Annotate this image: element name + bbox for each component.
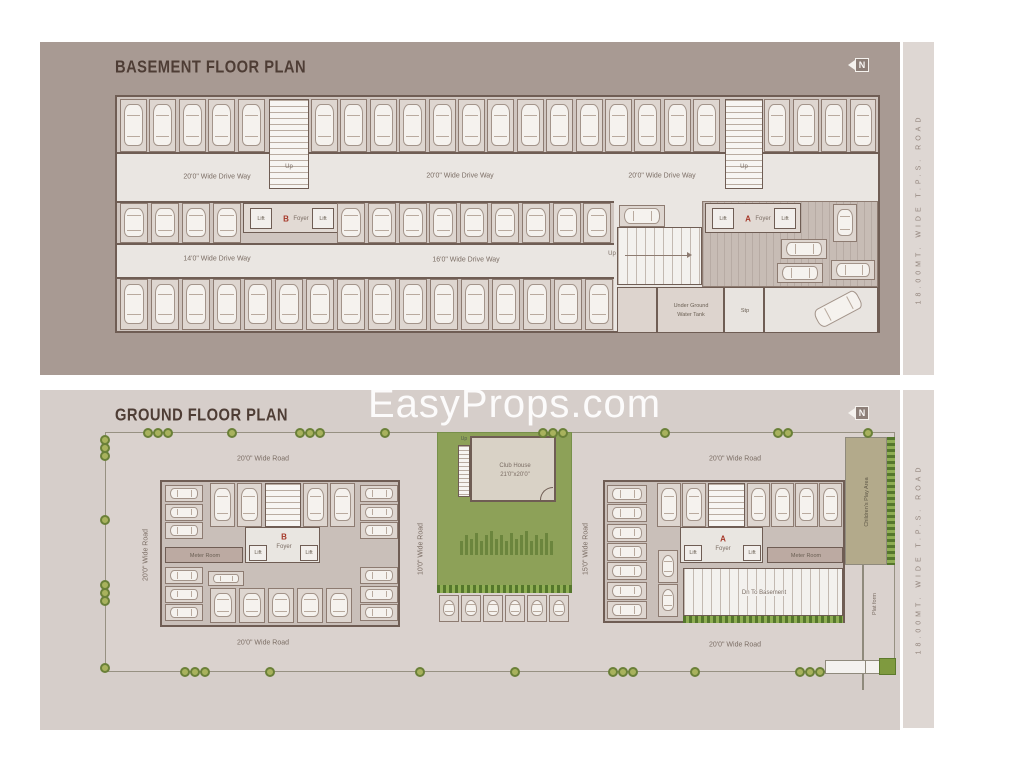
parking-stall bbox=[430, 279, 458, 330]
parking-stall bbox=[182, 279, 210, 330]
car-icon bbox=[837, 209, 853, 236]
tree-icon bbox=[190, 667, 200, 677]
boundary-hedge bbox=[887, 437, 895, 565]
ramp-hedge bbox=[683, 616, 843, 623]
play-area-label: Children's Play Area bbox=[864, 477, 870, 526]
tree-icon bbox=[200, 667, 210, 677]
parking-stall bbox=[360, 485, 398, 502]
parking-stall bbox=[399, 203, 427, 243]
car-icon bbox=[365, 589, 393, 600]
car-icon bbox=[589, 284, 609, 324]
road-label: 20'0" Wide Road bbox=[237, 640, 289, 647]
parking-stall bbox=[360, 567, 398, 584]
car-icon bbox=[797, 104, 815, 146]
car-icon bbox=[170, 570, 198, 581]
parking-stall bbox=[151, 203, 179, 243]
driveway-label: 16'0" Wide Drive Way bbox=[432, 257, 499, 264]
car-icon bbox=[186, 208, 206, 237]
parking-stall bbox=[238, 99, 265, 152]
tree-icon bbox=[163, 428, 173, 438]
building-b-stair bbox=[265, 483, 301, 527]
parking-stall bbox=[244, 279, 272, 330]
stp-room: Stp bbox=[724, 287, 764, 333]
parking-stall bbox=[483, 595, 503, 622]
car-icon bbox=[782, 266, 818, 280]
plant-bar-icon bbox=[510, 533, 513, 555]
tree-icon bbox=[100, 451, 110, 461]
car-icon bbox=[243, 593, 261, 617]
car-icon bbox=[557, 208, 577, 237]
building-a-stair bbox=[708, 483, 745, 527]
parking-stall bbox=[554, 279, 582, 330]
car-icon bbox=[443, 600, 455, 616]
parking-stall bbox=[165, 504, 203, 521]
car-icon bbox=[661, 488, 677, 521]
car-icon bbox=[638, 104, 657, 146]
parking-stall bbox=[527, 595, 547, 622]
platform-label: Plat form bbox=[872, 593, 878, 615]
stp-label: Stp bbox=[741, 308, 749, 314]
tree-icon bbox=[100, 596, 110, 606]
parking-stall bbox=[771, 483, 794, 527]
tree-icon bbox=[265, 667, 275, 677]
basement-ramp-ground: Dn To Basement bbox=[683, 568, 843, 616]
car-icon bbox=[272, 593, 290, 617]
basement-title: BASEMENT FLOOR PLAN bbox=[115, 58, 306, 78]
club-house: Club House 21'0"x20'0" bbox=[470, 436, 556, 502]
parking-stall bbox=[165, 604, 203, 621]
plant-bar-icon bbox=[530, 541, 533, 555]
water-tank-label-1: Under Ground bbox=[674, 303, 709, 309]
car-icon bbox=[612, 507, 642, 519]
foyer-label: Foyer bbox=[715, 546, 730, 552]
building-b-foyer: B Foyer Lift Lift bbox=[245, 527, 320, 563]
tree-icon bbox=[315, 428, 325, 438]
parking-stall bbox=[165, 522, 203, 539]
parking-stall bbox=[179, 99, 206, 152]
car-icon bbox=[612, 604, 642, 616]
floor-plan-page: { "watermark_text": "EasyProps.com", "si… bbox=[0, 0, 1021, 768]
car-icon bbox=[609, 104, 628, 146]
parking-stall bbox=[303, 483, 328, 527]
tree-icon bbox=[690, 667, 700, 677]
car-icon bbox=[242, 104, 261, 146]
parking-stall bbox=[120, 203, 148, 243]
parking-stall bbox=[576, 99, 603, 152]
car-icon bbox=[751, 488, 766, 521]
tree-icon bbox=[783, 428, 793, 438]
parking-stall bbox=[208, 571, 244, 586]
parking-stall bbox=[492, 279, 520, 330]
plant-bar-icon bbox=[495, 539, 498, 555]
road-label: 20'0" Wide Road bbox=[143, 529, 150, 581]
parking-stall bbox=[658, 584, 678, 617]
ground-plan: 20'0" Wide Road 20'0" Wide Road 20'0" Wi… bbox=[105, 432, 895, 732]
side-road-label: 18.00MT. WIDE T.P.S. ROAD bbox=[915, 113, 922, 304]
core-b: Lift B Foyer Lift bbox=[243, 203, 339, 233]
car-icon bbox=[487, 600, 499, 616]
parking-stall bbox=[151, 279, 179, 330]
car-icon bbox=[307, 488, 324, 521]
parking-stall bbox=[337, 279, 365, 330]
parking-stall bbox=[657, 483, 681, 527]
parking-stall bbox=[607, 485, 647, 503]
basement-plan: Up Up 20'0" Wide Drive Way 20'0" Wide Dr… bbox=[115, 95, 880, 333]
parking-stall bbox=[213, 279, 241, 330]
parking-stall bbox=[165, 485, 203, 502]
parking-stall bbox=[458, 99, 485, 152]
parking-stall bbox=[553, 203, 581, 243]
lift: Lift bbox=[300, 545, 318, 561]
foyer-b-label: Foyer bbox=[293, 216, 308, 222]
car-icon bbox=[553, 600, 565, 616]
parking-stall bbox=[522, 203, 550, 243]
block-a-letter: A bbox=[720, 535, 726, 544]
driveway-label: 20'0" Wide Drive Way bbox=[183, 174, 250, 181]
car-icon bbox=[836, 263, 870, 277]
lift-a1: Lift bbox=[712, 208, 734, 229]
car-icon bbox=[612, 488, 642, 500]
car-icon bbox=[403, 104, 422, 146]
lift-a2: Lift bbox=[774, 208, 796, 229]
tree-icon bbox=[415, 667, 425, 677]
parking-stall bbox=[210, 483, 235, 527]
tree-icon bbox=[618, 667, 628, 677]
road-label: 10'0" Wide Road bbox=[418, 523, 425, 575]
basement-stair-b bbox=[269, 99, 309, 189]
stair-up-label: Up bbox=[285, 164, 293, 170]
parking-stall bbox=[523, 279, 551, 330]
car-icon bbox=[372, 284, 392, 324]
parking-stall bbox=[360, 604, 398, 621]
car-icon bbox=[550, 104, 569, 146]
parking-stall bbox=[337, 203, 365, 243]
childrens-play-area: Children's Play Area bbox=[845, 437, 887, 565]
parking-stall bbox=[607, 504, 647, 522]
car-icon bbox=[217, 208, 237, 237]
parking-stall bbox=[693, 99, 720, 152]
building-a-meter-room: Meter Room bbox=[767, 547, 843, 563]
car-icon bbox=[365, 507, 393, 518]
parking-stall bbox=[583, 203, 611, 243]
car-icon bbox=[465, 284, 485, 324]
garden-hedge bbox=[437, 585, 572, 593]
parking-stall bbox=[793, 99, 819, 152]
parking-stall bbox=[370, 99, 397, 152]
parking-stall bbox=[850, 99, 876, 152]
plant-bar-icon bbox=[545, 533, 548, 555]
north-arrow-icon bbox=[848, 60, 855, 70]
parking-stall bbox=[368, 203, 396, 243]
tree-icon bbox=[380, 428, 390, 438]
car-icon bbox=[217, 284, 237, 324]
parking-stall bbox=[399, 99, 426, 152]
lift-b2: Lift bbox=[312, 208, 334, 229]
car-icon bbox=[854, 104, 872, 146]
core-a: Lift A Foyer Lift bbox=[705, 203, 801, 233]
plant-bar-icon bbox=[490, 531, 493, 555]
car-icon bbox=[170, 525, 198, 536]
tree-icon bbox=[538, 428, 548, 438]
car-icon bbox=[214, 488, 231, 521]
parking-stall bbox=[795, 483, 818, 527]
parking-stall bbox=[549, 595, 569, 622]
parking-stall bbox=[297, 588, 323, 623]
water-tank-room: Under Ground Water Tank bbox=[657, 287, 724, 333]
lift: Lift bbox=[743, 545, 761, 561]
parking-stall bbox=[165, 586, 203, 603]
car-icon bbox=[612, 585, 642, 597]
car-icon bbox=[310, 284, 330, 324]
car-icon bbox=[330, 593, 348, 617]
parking-stall bbox=[546, 99, 573, 152]
car-icon bbox=[527, 284, 547, 324]
parking-stall bbox=[607, 562, 647, 580]
parking-stall bbox=[268, 588, 294, 623]
driveway-label: 20'0" Wide Drive Way bbox=[628, 173, 695, 180]
parking-stall bbox=[210, 588, 236, 623]
road-label: 15'0" Wide Road bbox=[583, 523, 590, 575]
plant-bar-icon bbox=[475, 533, 478, 555]
car-icon bbox=[775, 488, 790, 521]
plant-bar-icon bbox=[520, 535, 523, 555]
ramp-arrow-line bbox=[625, 255, 687, 256]
parking-stall bbox=[360, 504, 398, 521]
car-icon bbox=[799, 488, 814, 521]
ramp-arrowhead-icon bbox=[687, 252, 692, 258]
plant-bar-icon bbox=[500, 535, 503, 555]
car-icon bbox=[612, 527, 642, 539]
meter-room-label: Meter Room bbox=[791, 553, 821, 559]
car-icon bbox=[531, 600, 543, 616]
tree-icon bbox=[773, 428, 783, 438]
parking-stall bbox=[439, 595, 459, 622]
watermark: EasyProps.com bbox=[368, 382, 661, 427]
parking-stall bbox=[182, 203, 210, 243]
ground-title: GROUND FLOOR PLAN bbox=[115, 406, 288, 426]
gate-cabin bbox=[865, 660, 880, 674]
parking-stall bbox=[607, 582, 647, 600]
car-icon bbox=[558, 284, 578, 324]
tree-icon bbox=[815, 667, 825, 677]
parking-stall bbox=[429, 99, 456, 152]
club-house-name: Club House bbox=[499, 463, 530, 469]
car-icon bbox=[433, 104, 452, 146]
parking-stall bbox=[491, 203, 519, 243]
plant-bar-icon bbox=[460, 541, 463, 555]
road-label: 20'0" Wide Road bbox=[709, 456, 761, 463]
car-icon bbox=[214, 593, 232, 617]
car-icon bbox=[186, 284, 206, 324]
car-icon bbox=[124, 284, 144, 324]
car-icon bbox=[124, 208, 144, 237]
car-icon bbox=[170, 507, 198, 518]
parking-stall bbox=[607, 543, 647, 561]
parking-stall bbox=[461, 595, 481, 622]
tree-icon bbox=[660, 428, 670, 438]
ramp-label: Dn To Basement bbox=[740, 590, 788, 596]
plant-bar-icon bbox=[465, 535, 468, 555]
car-icon bbox=[183, 104, 202, 146]
car-icon bbox=[624, 208, 660, 224]
water-tank-label-2: Water Tank bbox=[677, 312, 705, 318]
parking-stall bbox=[777, 263, 823, 283]
car-icon bbox=[365, 488, 393, 499]
parking-stall bbox=[399, 279, 427, 330]
building-a-foyer: A Foyer Lift Lift bbox=[680, 527, 763, 563]
plant-bar-icon bbox=[535, 535, 538, 555]
tree-icon bbox=[805, 667, 815, 677]
basement-stair-a bbox=[725, 99, 763, 189]
parking-stall bbox=[360, 522, 398, 539]
car-icon bbox=[768, 104, 786, 146]
parking-stall bbox=[505, 595, 525, 622]
tree-icon bbox=[558, 428, 568, 438]
car-icon bbox=[662, 555, 674, 577]
car-icon bbox=[509, 600, 521, 616]
car-icon bbox=[170, 488, 198, 499]
parking-stall bbox=[461, 279, 489, 330]
tree-icon bbox=[100, 663, 110, 673]
side-road-strip: 18.00MT. WIDE T.P.S. ROAD bbox=[903, 390, 934, 728]
car-icon bbox=[495, 208, 515, 237]
car-icon bbox=[248, 284, 268, 324]
driveway-label: 14'0" Wide Drive Way bbox=[183, 256, 250, 263]
stair-up-label: Up bbox=[740, 164, 748, 170]
car-icon bbox=[462, 104, 481, 146]
car-icon bbox=[155, 208, 175, 237]
parking-stall bbox=[821, 99, 847, 152]
plant-bar-icon bbox=[515, 539, 518, 555]
parking-stall bbox=[619, 205, 665, 227]
parking-stall bbox=[819, 483, 842, 527]
parking-stall bbox=[326, 588, 352, 623]
parking-stall bbox=[330, 483, 355, 527]
door-arc-icon bbox=[540, 487, 553, 500]
car-icon bbox=[124, 104, 143, 146]
car-icon bbox=[786, 242, 822, 256]
lift: Lift bbox=[249, 545, 267, 561]
car-icon bbox=[587, 208, 607, 237]
plant-bar-icon bbox=[505, 541, 508, 555]
car-icon bbox=[344, 104, 363, 146]
car-icon bbox=[434, 284, 454, 324]
block-b-letter: B bbox=[283, 215, 289, 224]
parking-stall bbox=[237, 483, 262, 527]
parking-stall bbox=[607, 524, 647, 542]
ground-panel: GROUND FLOOR PLAN N 20'0" Wide Road 20'0… bbox=[40, 390, 900, 730]
north-letter: N bbox=[855, 406, 869, 420]
parking-stall bbox=[311, 99, 338, 152]
car-icon bbox=[374, 104, 393, 146]
parking-stall bbox=[607, 601, 647, 619]
plant-bar-icon bbox=[480, 541, 483, 555]
club-house-size: 21'0"x20'0" bbox=[500, 472, 530, 478]
parking-stall bbox=[165, 567, 203, 584]
car-icon bbox=[526, 208, 546, 237]
parking-stall bbox=[306, 279, 334, 330]
tree-icon bbox=[510, 667, 520, 677]
car-icon bbox=[697, 104, 716, 146]
parking-stall bbox=[658, 550, 678, 583]
club-house-stair bbox=[458, 445, 470, 497]
parking-stall bbox=[682, 483, 706, 527]
car-icon bbox=[521, 104, 540, 146]
car-icon bbox=[241, 488, 258, 521]
tree-icon bbox=[100, 515, 110, 525]
road-label: 20'0" Wide Road bbox=[237, 456, 289, 463]
car-icon bbox=[315, 104, 334, 146]
driveway-label: 20'0" Wide Drive Way bbox=[426, 173, 493, 180]
foyer-a-label: Foyer bbox=[755, 216, 770, 222]
parking-stall bbox=[833, 204, 857, 242]
tree-icon bbox=[295, 428, 305, 438]
tree-icon bbox=[863, 428, 873, 438]
parking-stall bbox=[831, 260, 875, 280]
parking-stall bbox=[585, 279, 613, 330]
north-indicator: N bbox=[848, 58, 869, 72]
gate-landscape bbox=[879, 658, 896, 675]
car-icon bbox=[372, 208, 392, 237]
tree-icon bbox=[608, 667, 618, 677]
car-icon bbox=[155, 284, 175, 324]
road-label: 20'0" Wide Road bbox=[709, 642, 761, 649]
club-stair-up-label: Up bbox=[461, 436, 467, 442]
car-icon bbox=[580, 104, 599, 146]
car-icon bbox=[170, 607, 198, 618]
plant-bar-icon bbox=[485, 535, 488, 555]
parking-stall bbox=[368, 279, 396, 330]
north-letter: N bbox=[855, 58, 869, 72]
north-indicator: N bbox=[848, 406, 869, 420]
parking-stall bbox=[634, 99, 661, 152]
car-icon bbox=[212, 104, 231, 146]
tree-icon bbox=[153, 428, 163, 438]
car-icon bbox=[403, 208, 423, 237]
car-icon bbox=[301, 593, 319, 617]
parking-stall bbox=[487, 99, 514, 152]
car-icon bbox=[496, 284, 516, 324]
tree-icon bbox=[548, 428, 558, 438]
parking-stall bbox=[239, 588, 265, 623]
north-arrow-icon bbox=[848, 408, 855, 418]
lift: Lift bbox=[684, 545, 702, 561]
basement-panel: BASEMENT FLOOR PLAN N Up Up 20'0" Wide D… bbox=[40, 42, 900, 375]
plant-bar-icon bbox=[540, 539, 543, 555]
tree-icon bbox=[180, 667, 190, 677]
car-icon bbox=[403, 284, 423, 324]
car-icon bbox=[341, 208, 361, 237]
building-b-meter-room: Meter Room bbox=[165, 547, 243, 563]
parking-stall bbox=[460, 203, 488, 243]
parking-stall bbox=[120, 279, 148, 330]
car-icon bbox=[612, 565, 642, 577]
car-icon bbox=[823, 488, 838, 521]
parking-stall bbox=[120, 99, 147, 152]
plant-bar-icon bbox=[525, 531, 528, 555]
parking-stall bbox=[208, 99, 235, 152]
plant-bar-icon bbox=[470, 539, 473, 555]
parking-stall bbox=[781, 239, 827, 259]
car-icon bbox=[279, 284, 299, 324]
parking-stall bbox=[149, 99, 176, 152]
car-icon bbox=[170, 589, 198, 600]
tree-icon bbox=[628, 667, 638, 677]
parking-stall bbox=[275, 279, 303, 330]
service-room bbox=[617, 287, 657, 333]
car-icon bbox=[334, 488, 351, 521]
car-icon bbox=[365, 525, 393, 536]
